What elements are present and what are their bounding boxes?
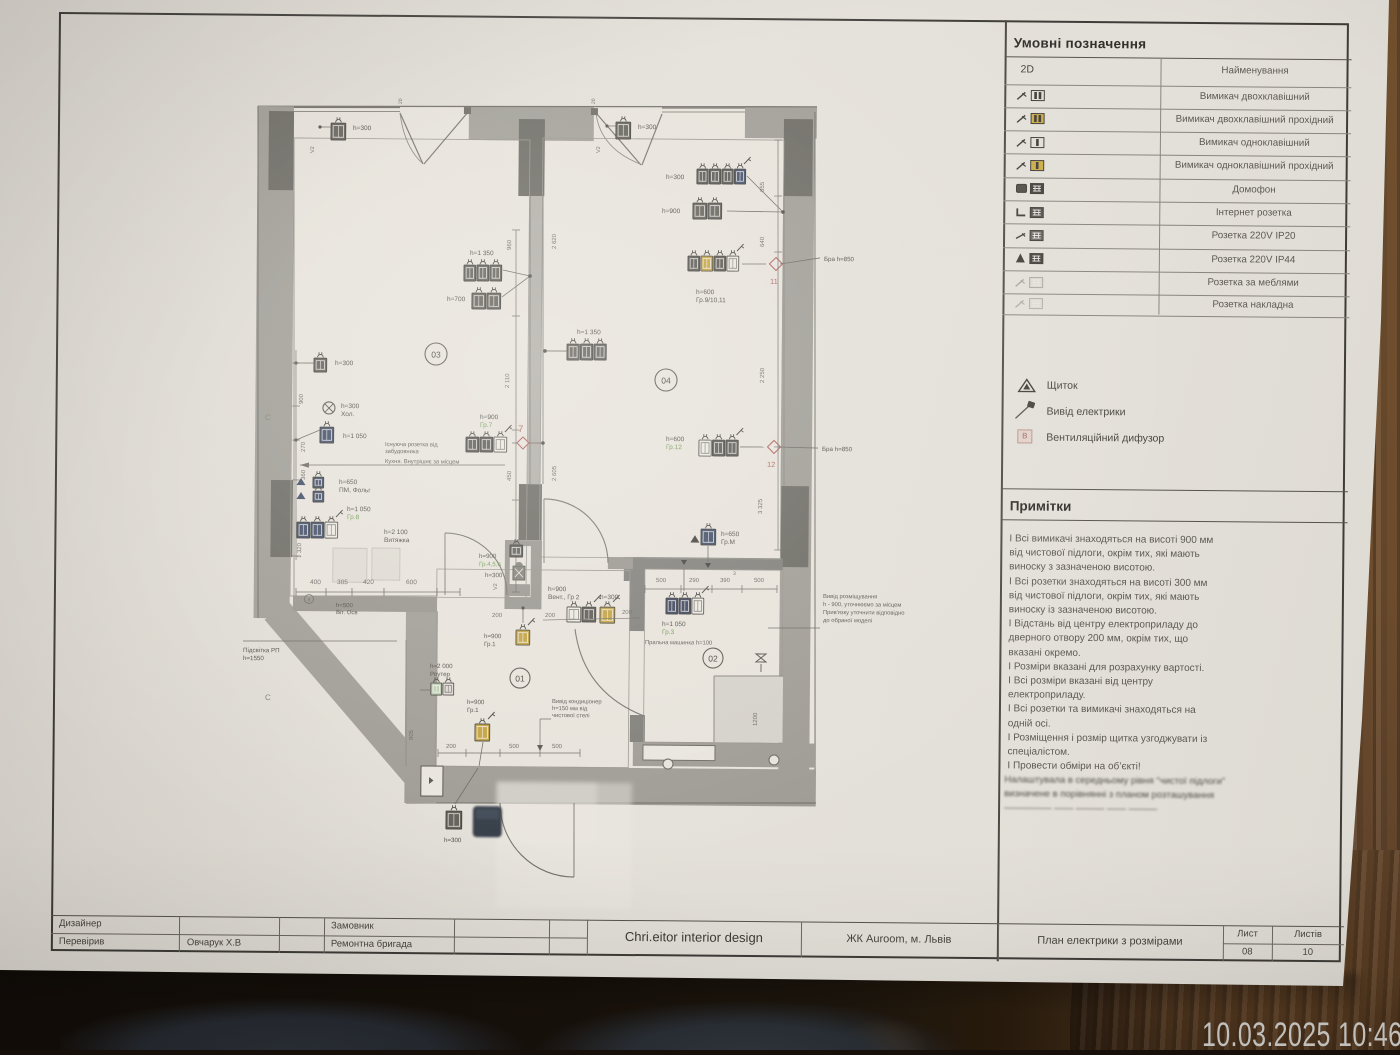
svg-text:h=1 350: h=1 350 bbox=[577, 329, 601, 336]
svg-text:Вивід кондиціонер: Вивід кондиціонер bbox=[552, 699, 602, 705]
svg-text:h=300: h=300 bbox=[666, 174, 685, 181]
svg-text:1 320: 1 320 bbox=[297, 542, 303, 558]
svg-text:Гр.1: Гр.1 bbox=[467, 707, 479, 714]
svg-text:360: 360 bbox=[301, 469, 307, 480]
svg-text:Пральна машинка h=100: Пральна машинка h=100 bbox=[645, 640, 712, 647]
svg-text:Гр.М: Гр.М bbox=[721, 539, 735, 546]
svg-text:Вент., Гр 2: Вент., Гр 2 bbox=[548, 594, 580, 601]
svg-text:h=1 050: h=1 050 bbox=[662, 621, 686, 628]
svg-text:01: 01 bbox=[515, 674, 525, 684]
svg-text:h=900: h=900 bbox=[484, 633, 502, 640]
svg-text:С: С bbox=[265, 413, 271, 422]
svg-text:h=300: h=300 bbox=[485, 572, 503, 579]
svg-text:Гр.4,5,6: Гр.4,5,6 bbox=[479, 561, 502, 568]
svg-text:390: 390 bbox=[720, 578, 731, 584]
svg-text:Гр.8: Гр.8 bbox=[347, 514, 360, 521]
svg-text:Підсвітка РП: Підсвітка РП bbox=[243, 647, 280, 654]
svg-text:h=600: h=600 bbox=[666, 436, 685, 443]
svg-text:Прив'язку уточнити відповідно: Прив'язку уточнити відповідно bbox=[823, 610, 905, 617]
svg-text:h=150 мм від: h=150 мм від bbox=[552, 706, 588, 712]
svg-text:500: 500 bbox=[754, 578, 765, 584]
svg-text:h=2 000: h=2 000 bbox=[430, 663, 453, 670]
svg-text:h=900: h=900 bbox=[480, 414, 499, 421]
svg-text:200: 200 bbox=[446, 744, 457, 750]
svg-text:02: 02 bbox=[708, 653, 718, 663]
svg-text:h=600: h=600 bbox=[696, 289, 715, 296]
svg-text:h=900: h=900 bbox=[467, 699, 485, 706]
svg-text:04: 04 bbox=[661, 375, 671, 385]
svg-text:960: 960 bbox=[507, 239, 513, 250]
svg-text:12: 12 bbox=[767, 460, 775, 469]
svg-text:h=1550: h=1550 bbox=[243, 655, 264, 662]
svg-text:h=1 350: h=1 350 bbox=[470, 250, 494, 257]
svg-text:h=300: h=300 bbox=[335, 360, 354, 367]
svg-text:Витяжка: Витяжка bbox=[384, 537, 410, 544]
svg-text:h=1 050: h=1 050 bbox=[347, 506, 371, 513]
svg-text:V2: V2 bbox=[596, 146, 602, 153]
svg-text:900: 900 bbox=[299, 393, 305, 404]
svg-text:200: 200 bbox=[545, 613, 556, 619]
svg-text:Бра h=850: Бра h=850 bbox=[824, 256, 855, 263]
svg-text:до обраної моделі: до обраної моделі bbox=[823, 618, 872, 624]
svg-text:Роутер: Роутер bbox=[430, 671, 451, 678]
svg-text:ПМ, Фольг: ПМ, Фольг bbox=[339, 487, 371, 494]
svg-text:1200: 1200 bbox=[753, 712, 759, 726]
svg-text:905: 905 bbox=[409, 729, 415, 740]
svg-text:h=300: h=300 bbox=[444, 837, 462, 844]
svg-text:V2: V2 bbox=[310, 146, 316, 153]
svg-text:чистової стелі: чистової стелі bbox=[552, 713, 590, 719]
svg-text:Гр.1: Гр.1 bbox=[484, 641, 496, 648]
svg-text:2 620: 2 620 bbox=[552, 233, 558, 249]
svg-text:450: 450 bbox=[507, 470, 513, 481]
svg-text:420: 420 bbox=[363, 579, 374, 586]
svg-text:забудовника: забудовника bbox=[385, 449, 420, 455]
svg-text:h=900: h=900 bbox=[479, 553, 497, 560]
svg-text:Гр.7: Гр.7 bbox=[480, 422, 493, 429]
svg-text:h=900: h=900 bbox=[662, 208, 681, 215]
svg-text:Віт. Осв: Віт. Осв bbox=[336, 610, 358, 616]
svg-text:20: 20 bbox=[591, 98, 597, 104]
svg-text:855: 855 bbox=[760, 181, 766, 192]
svg-text:20: 20 bbox=[398, 98, 404, 104]
svg-text:3: 3 bbox=[733, 571, 736, 577]
svg-text:h=500: h=500 bbox=[336, 603, 354, 609]
svg-text:2 110: 2 110 bbox=[505, 373, 511, 388]
svg-text:270: 270 bbox=[301, 441, 307, 452]
svg-text:Гр.12: Гр.12 bbox=[666, 444, 682, 451]
svg-text:600: 600 bbox=[406, 579, 417, 586]
svg-text:500: 500 bbox=[656, 578, 667, 584]
svg-text:03: 03 bbox=[431, 349, 441, 359]
svg-text:h=650: h=650 bbox=[339, 479, 358, 486]
svg-text:305: 305 bbox=[337, 579, 348, 586]
svg-text:3 325: 3 325 bbox=[758, 498, 764, 514]
svg-text:h=2 100: h=2 100 bbox=[384, 529, 408, 536]
svg-text:11: 11 bbox=[770, 277, 778, 286]
svg-text:h=300: h=300 bbox=[638, 124, 657, 131]
svg-text:h=300: h=300 bbox=[353, 125, 372, 132]
svg-text:200: 200 bbox=[622, 610, 633, 616]
svg-text:Вивід розміщування: Вивід розміщування bbox=[823, 594, 877, 600]
svg-text:Хол.: Хол. bbox=[341, 411, 355, 418]
svg-text:h - 900, уточнюємо за місцем: h - 900, уточнюємо за місцем bbox=[823, 602, 901, 609]
svg-text:Гр.9/10,11: Гр.9/10,11 bbox=[696, 297, 726, 304]
svg-text:С: С bbox=[265, 693, 271, 702]
svg-text:h=300: h=300 bbox=[600, 594, 619, 601]
svg-text:h=650: h=650 bbox=[721, 531, 740, 538]
svg-text:h=300: h=300 bbox=[341, 403, 360, 410]
svg-text:h=700: h=700 bbox=[447, 296, 466, 303]
svg-text:2 250: 2 250 bbox=[760, 367, 766, 383]
svg-text:500: 500 bbox=[552, 744, 563, 750]
svg-text:Кухня. Внутрішнє за місцем: Кухня. Внутрішнє за місцем bbox=[385, 459, 459, 466]
svg-text:290: 290 bbox=[689, 578, 700, 584]
svg-text:Бра h=850: Бра h=850 bbox=[822, 446, 853, 453]
svg-text:Гр.3: Гр.3 bbox=[662, 629, 675, 636]
svg-text:640: 640 bbox=[760, 236, 766, 247]
svg-text:h=1 050: h=1 050 bbox=[343, 433, 367, 440]
svg-text:400: 400 bbox=[310, 579, 321, 586]
svg-text:V2: V2 bbox=[493, 583, 499, 590]
svg-text:Існуюча розетка від: Існуюча розетка від bbox=[385, 442, 438, 448]
svg-text:8: 8 bbox=[308, 597, 311, 603]
svg-text:7: 7 bbox=[518, 424, 523, 435]
svg-text:2 605: 2 605 bbox=[552, 465, 558, 481]
svg-text:h=900: h=900 bbox=[548, 586, 567, 593]
svg-text:500: 500 bbox=[509, 744, 520, 750]
svg-text:200: 200 bbox=[492, 613, 503, 619]
